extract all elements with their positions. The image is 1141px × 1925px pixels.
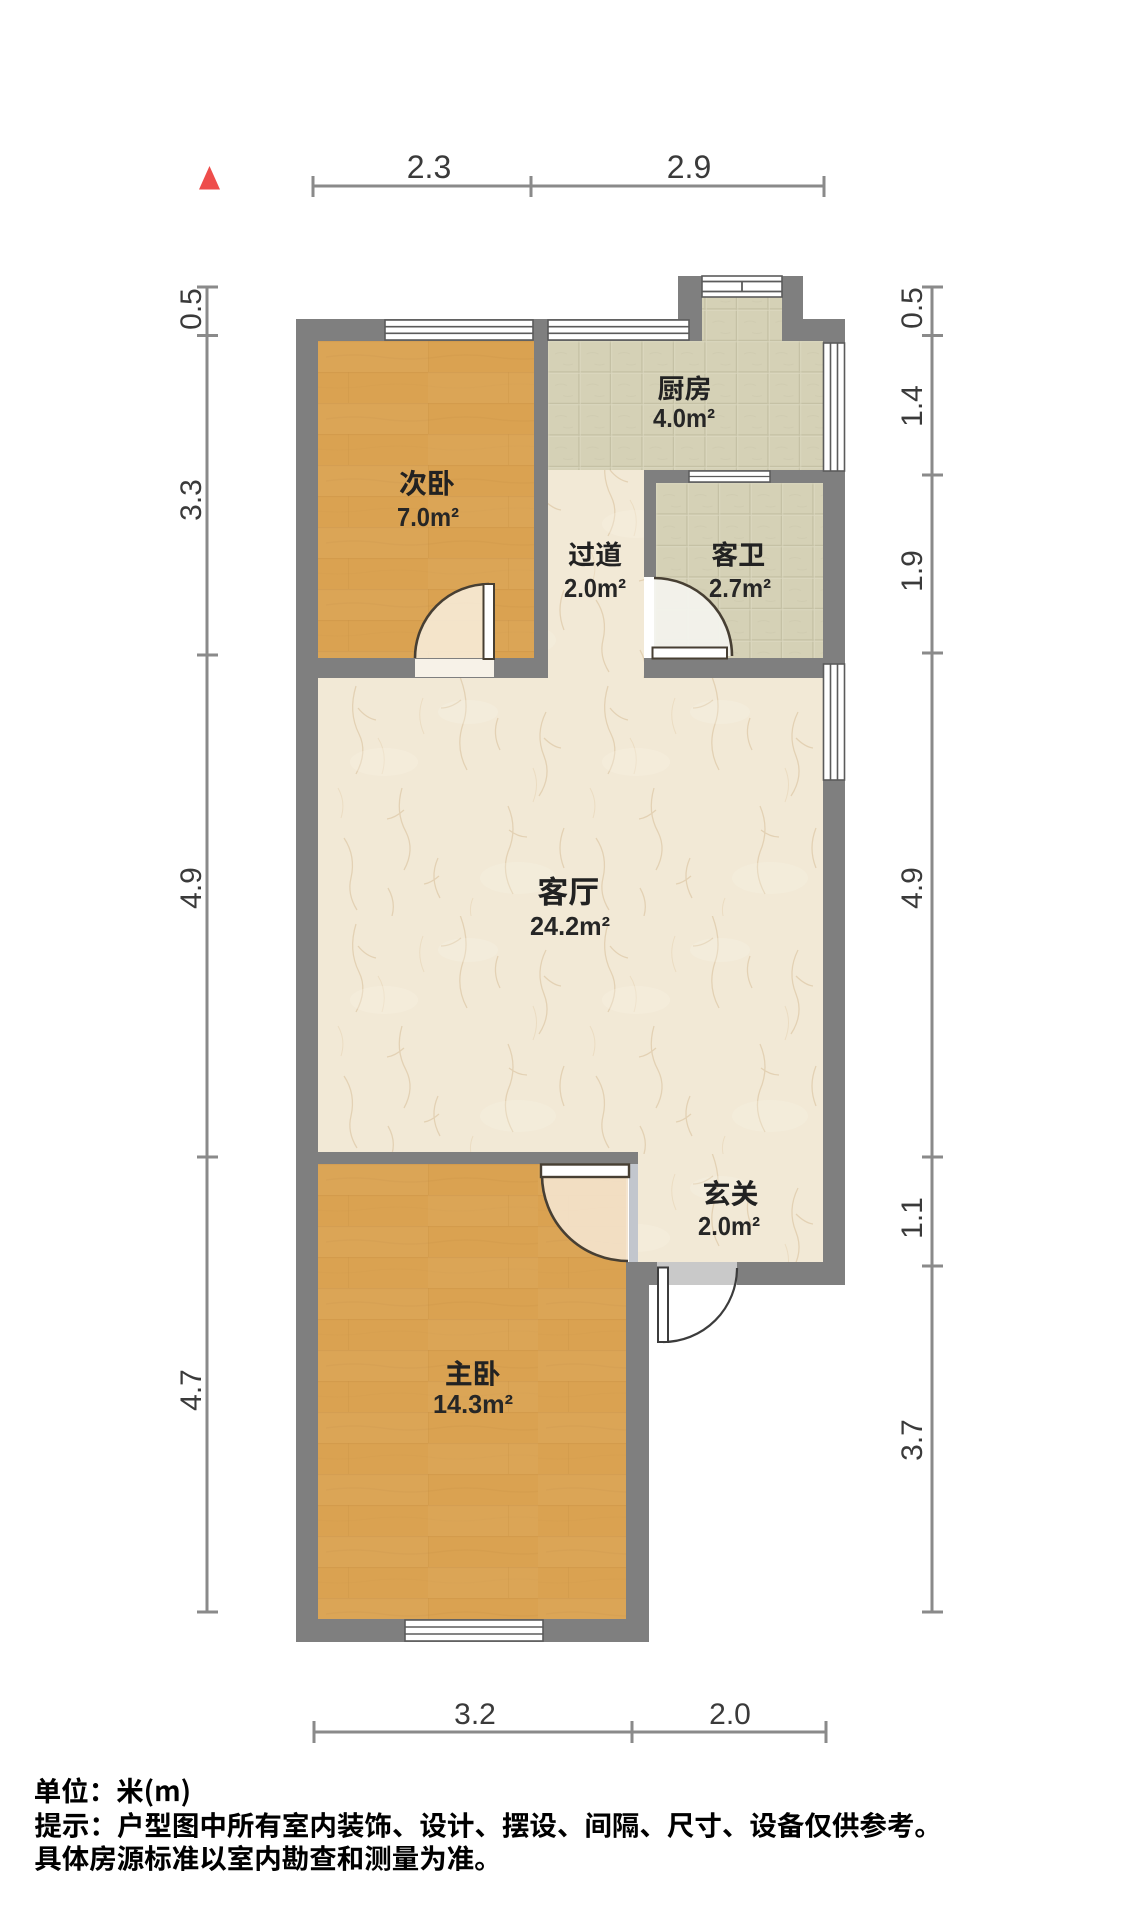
svg-text:4.9: 4.9 [896,867,929,909]
svg-text:1.4: 1.4 [896,385,929,427]
svg-text:2.7m²: 2.7m² [709,573,771,603]
svg-text:2.3: 2.3 [407,149,451,185]
svg-text:4.7: 4.7 [175,1369,208,1411]
svg-text:1.1: 1.1 [896,1197,929,1239]
svg-text:14.3m²: 14.3m² [433,1389,513,1419]
svg-text:1.9: 1.9 [896,550,929,592]
svg-text:7.0m²: 7.0m² [397,502,459,532]
svg-text:3.2: 3.2 [454,1698,496,1731]
svg-text:2.0m²: 2.0m² [564,573,626,603]
svg-text:3.3: 3.3 [175,479,208,521]
svg-text:4.9: 4.9 [175,867,208,909]
svg-text:0.5: 0.5 [896,287,929,329]
svg-text:4.0m²: 4.0m² [653,403,715,433]
svg-text:2.9: 2.9 [667,149,711,185]
svg-text:2.0m²: 2.0m² [698,1211,760,1241]
svg-text:24.2m²: 24.2m² [530,911,610,941]
svg-text:2.0: 2.0 [709,1698,751,1731]
svg-text:0.5: 0.5 [175,288,208,330]
svg-text:3.7: 3.7 [896,1419,929,1461]
